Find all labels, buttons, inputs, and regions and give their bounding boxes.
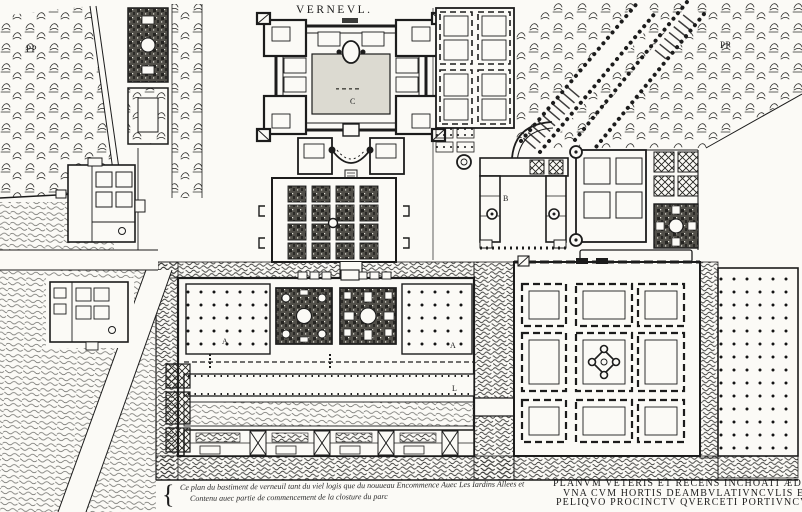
label-court: C (350, 97, 355, 106)
fields-southwest (0, 250, 172, 512)
verneuil-plan-engraving: PP VERNEVL. (0, 0, 802, 512)
parterre-terrace (259, 178, 409, 262)
plan-title: VERNEVL. (296, 4, 373, 16)
label-walkway: L (452, 384, 457, 393)
kitchen-garden-grid (436, 8, 514, 128)
engraving-page: PP VERNEVL. (0, 0, 802, 512)
hamlet-building (46, 278, 134, 350)
caption-brace: { (162, 480, 174, 509)
label-park-upper-left: PP (26, 44, 37, 54)
label-parterre-right: A (450, 341, 456, 350)
label-park-upper-right: PP (720, 40, 731, 50)
grand-garden (514, 256, 700, 456)
walled-garden-west (178, 270, 474, 456)
label-parterre-left: A (222, 337, 228, 346)
farm-building (68, 158, 145, 242)
caption-latin-line3: PELIQVO PROCINCTV QVERCETI PORTIVNCVLA (556, 497, 802, 508)
great-walkway (184, 374, 474, 396)
hedge-band (184, 402, 474, 426)
moat-bridge (472, 398, 516, 416)
caption-latin: PLANVM VETERIS ET RECENS INCHOATI ÆDIFIC… (553, 478, 802, 508)
dotted-garden-east (718, 268, 798, 456)
label-service-building: B (503, 194, 508, 203)
chateau (257, 13, 445, 141)
